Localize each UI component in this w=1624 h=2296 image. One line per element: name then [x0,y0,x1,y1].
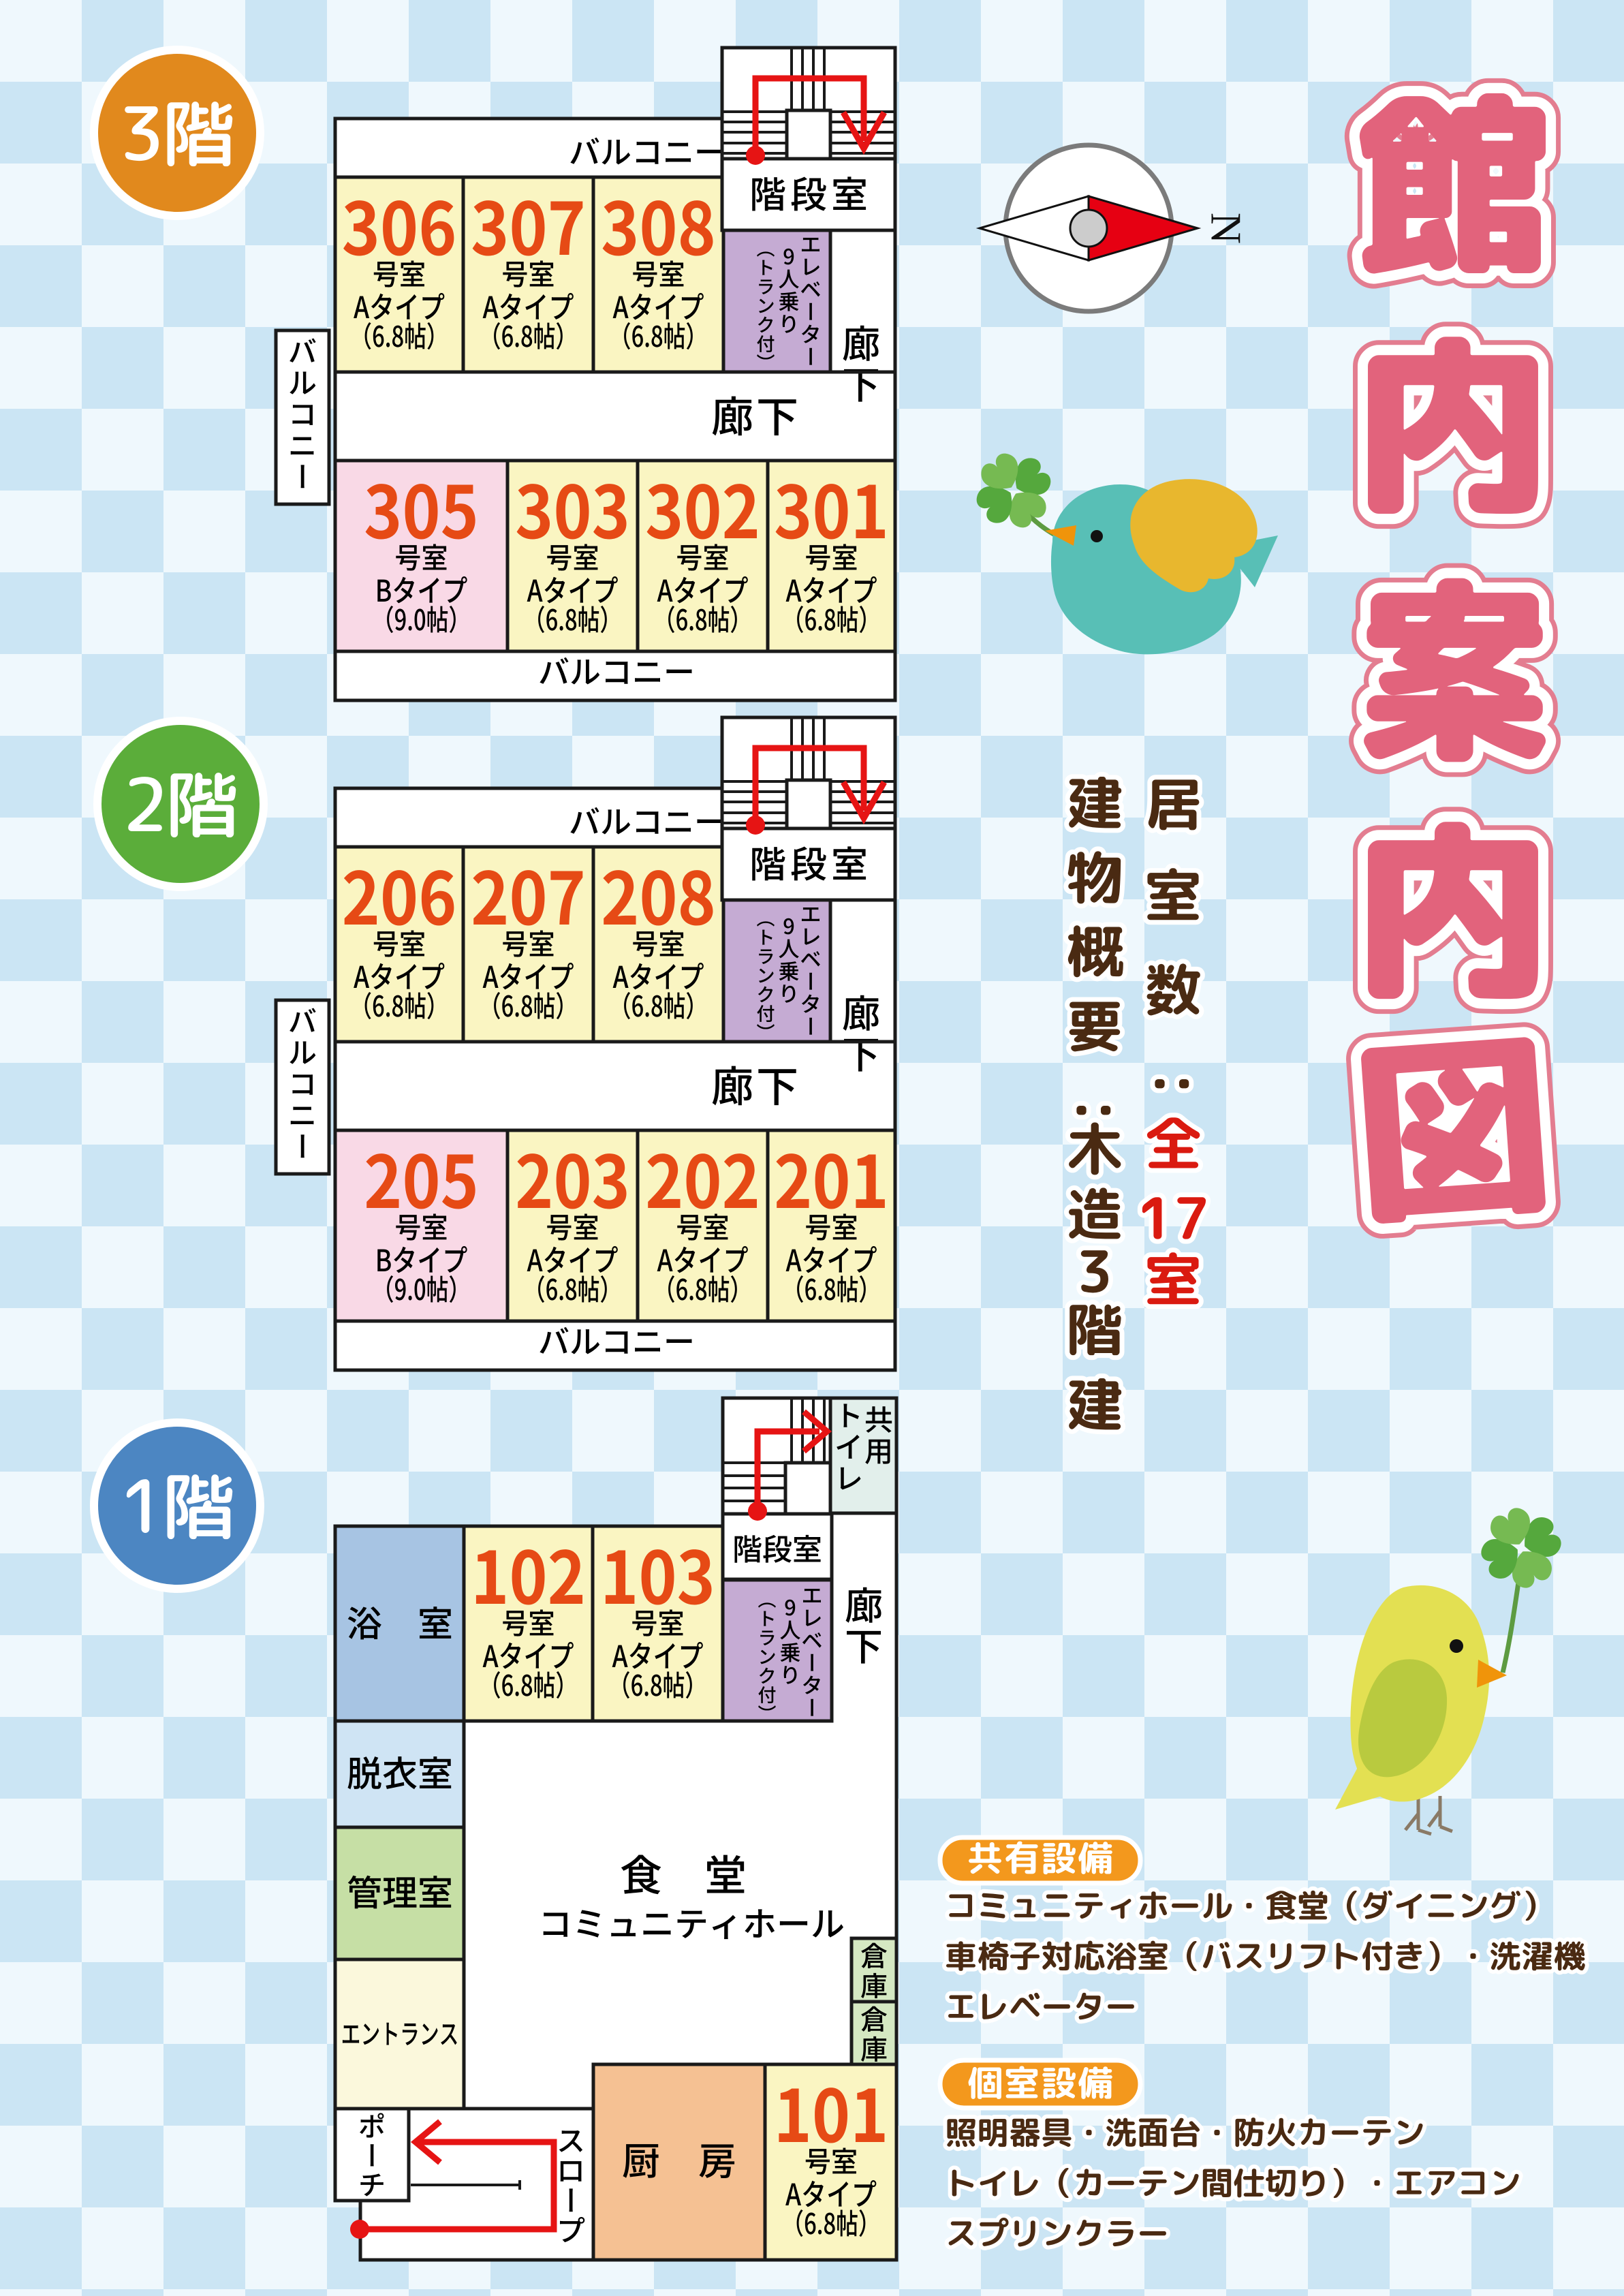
svg-text:N: N [1202,213,1251,244]
